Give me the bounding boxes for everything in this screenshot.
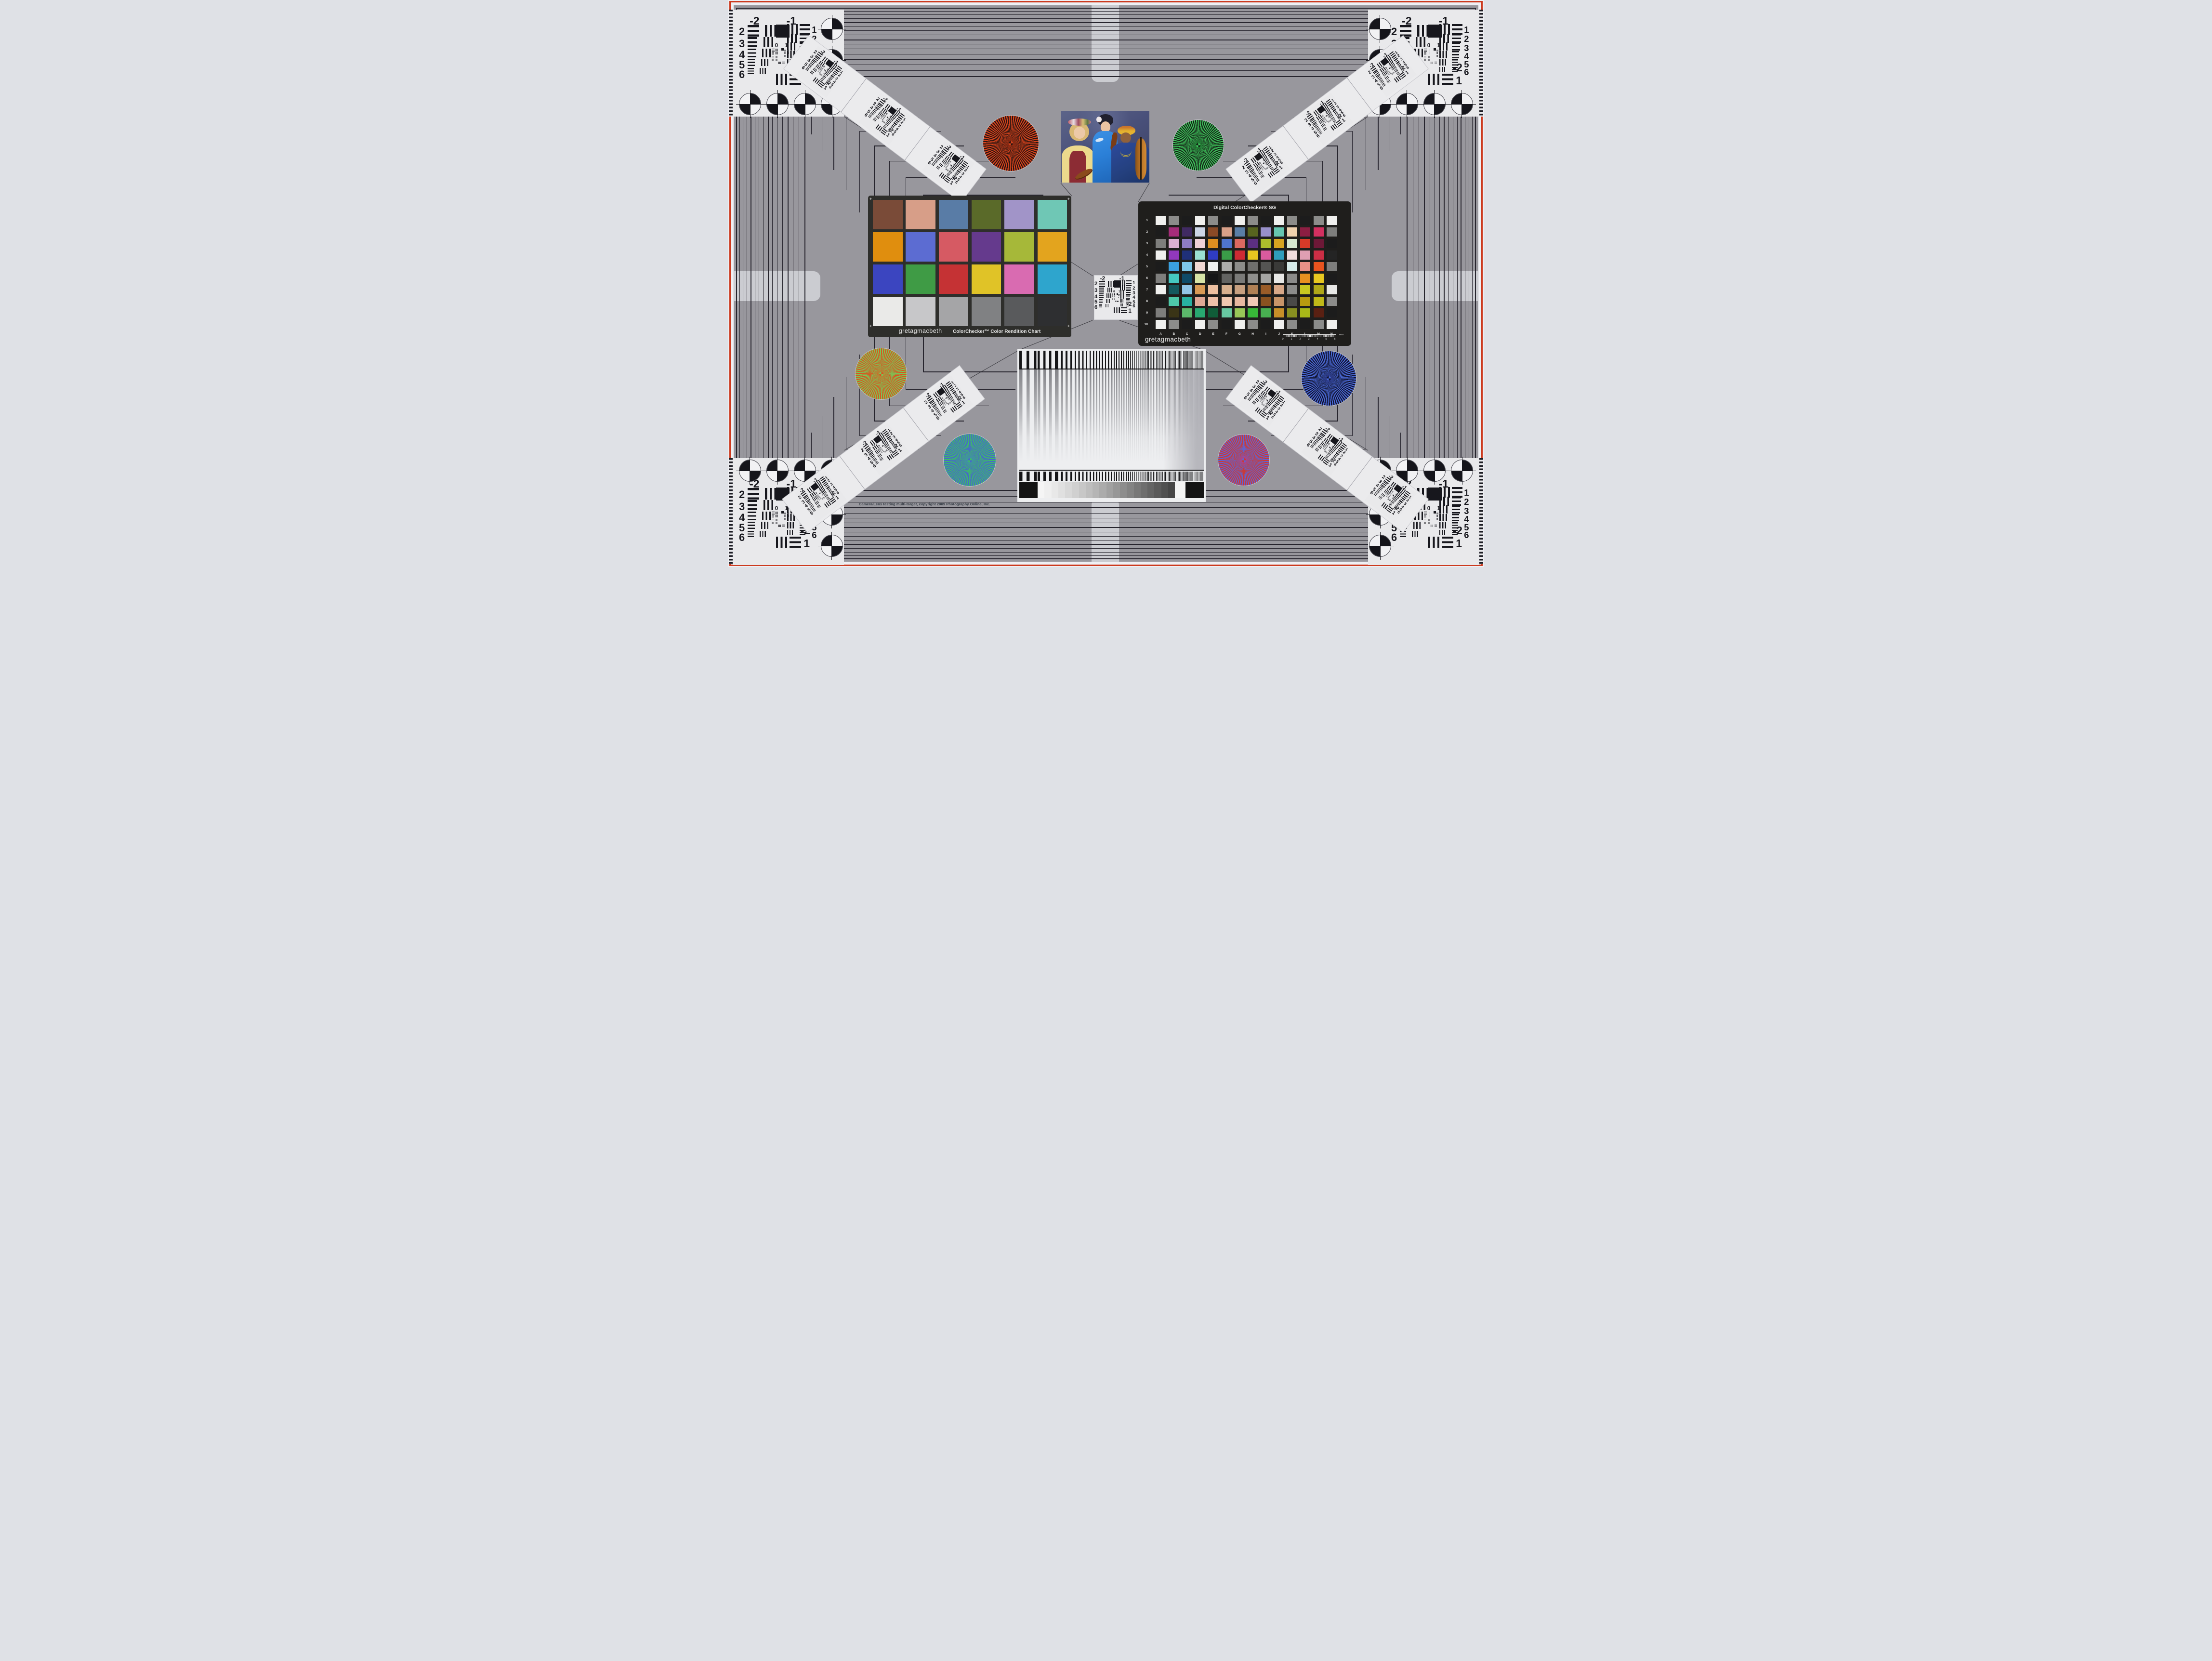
registration-circle-icon: [1451, 460, 1473, 481]
sg-patch: [1235, 297, 1245, 306]
resolution-bars: [1119, 297, 1120, 298]
resolution-bars: [1099, 293, 1103, 298]
resolution-bars: [1112, 295, 1113, 297]
resolution-bars: [1436, 52, 1438, 54]
resolution-bars: [1417, 25, 1429, 37]
sg-patch: [1169, 320, 1179, 329]
crosshair-line: [1421, 104, 1448, 105]
resolution-bars: [1114, 295, 1115, 297]
usaf-label: 3: [739, 501, 745, 512]
sg-patch: [1314, 285, 1324, 294]
bar-frequency-segment: [1093, 351, 1111, 369]
sg-patch: [1235, 227, 1245, 237]
sg-column-label: K: [1287, 332, 1297, 336]
usaf-label: 1: [1437, 506, 1440, 512]
resolution-bars: [1119, 294, 1120, 295]
resolution-bars: [1439, 59, 1446, 66]
resolution-bars: [1435, 62, 1437, 64]
wedge-black-cap: [1019, 482, 1038, 498]
sg-patch: [1274, 216, 1284, 225]
usaf-label: 2: [1464, 35, 1469, 43]
usaf-label: 1: [1456, 75, 1462, 86]
sg-patch: [1169, 262, 1179, 271]
resolution-bars: [1264, 168, 1265, 170]
resolution-bars: [762, 49, 771, 57]
bar-frequency-segment: [1185, 351, 1204, 369]
colorchecker-brand: gretagmacbeth: [899, 328, 942, 334]
usaf-label: 2: [739, 26, 745, 37]
sg-patch: [1261, 262, 1271, 271]
resolution-bars: [885, 447, 886, 448]
resolution-bars: [1310, 445, 1314, 448]
registration-circle-icon: [821, 535, 843, 556]
sg-row-label: 7: [1141, 288, 1148, 291]
resolution-bars: [1452, 514, 1459, 521]
sg-patch: [1222, 308, 1232, 317]
usaf-label: 6: [739, 532, 745, 543]
resolution-bars: [1328, 121, 1330, 122]
ruler-number: 2: [1298, 338, 1302, 341]
resolution-bars: [760, 531, 766, 537]
colorchecker-patch: [972, 264, 1001, 294]
colorchecker-title: ColorChecker™ Color Rendition Chart: [953, 329, 1040, 334]
resolution-bars: [1114, 293, 1115, 295]
sg-patch: [1235, 239, 1245, 248]
resolution-bars: [778, 525, 781, 527]
registration-circle-icon: [767, 460, 788, 481]
sg-patch: [1182, 227, 1192, 237]
registration-circle-icon: [821, 18, 843, 40]
registration-circle-icon: [767, 93, 788, 115]
resolution-bars: [1248, 397, 1251, 401]
colorchecker-patch: [1004, 264, 1034, 294]
resolution-bars: [1099, 304, 1102, 307]
resolution-bars: [822, 498, 823, 500]
ruler-number: 0: [1281, 338, 1285, 341]
resolution-bars: [1120, 299, 1123, 303]
resolution-bars: [1424, 512, 1427, 514]
usaf-label: 3: [1094, 288, 1097, 293]
sg-patch: [1314, 227, 1324, 237]
bar-frequency-segment: [1075, 351, 1093, 369]
resolution-bars: [1260, 174, 1264, 178]
ruler-number: 5: [1324, 338, 1328, 341]
sg-patch: [1182, 250, 1192, 260]
sg-patch: [1261, 250, 1271, 260]
sg-patch: [1261, 216, 1271, 225]
usaf-label: 2: [739, 489, 745, 500]
colorchecker-classic-chart: + + + + gretagmacbeth ColorChecker™ Colo…: [868, 196, 1071, 337]
registration-circle-icon: [1396, 93, 1418, 115]
resolution-bars: [1428, 515, 1430, 517]
resolution-bars: [1329, 117, 1330, 118]
sg-patch: [1261, 285, 1271, 294]
resolution-bars: [1118, 294, 1119, 295]
resolution-bars: [880, 457, 883, 461]
resolution-bars: [1428, 522, 1430, 524]
resolution-bars: [823, 497, 825, 499]
resolution-bars: [1325, 122, 1327, 123]
sg-patch: [1327, 308, 1337, 317]
sg-patch: [1314, 308, 1324, 317]
sg-patch: [1287, 285, 1297, 294]
sg-patch: [1287, 262, 1297, 271]
sg-patch: [1182, 285, 1192, 294]
resolution-bars: [784, 518, 786, 520]
crosshair-line: [832, 15, 832, 43]
digital-colorchecker-sg-chart: Digital ColorChecker® SG gretagmacbeth 0…: [1138, 201, 1351, 346]
resolution-bars: [784, 515, 786, 517]
resolution-bars: [949, 402, 951, 403]
resolution-bars: [1118, 295, 1119, 296]
sg-patch: [1314, 274, 1324, 283]
resolution-bars: [1378, 496, 1382, 500]
sg-patch: [1169, 227, 1179, 237]
sg-patch: [1248, 320, 1258, 329]
wedge-step: [1086, 482, 1093, 498]
resolution-bars: [748, 59, 755, 66]
wedge-step: [1154, 482, 1161, 498]
registration-circle-icon: [1369, 535, 1391, 556]
crosshair-line: [1380, 532, 1381, 560]
resolution-bars: [1330, 119, 1331, 121]
sg-patch: [1261, 227, 1271, 237]
colorchecker-patch: [873, 264, 903, 294]
sg-column-label: H: [1248, 332, 1258, 336]
usaf-label: 6: [927, 160, 932, 166]
sg-patch: [1274, 285, 1284, 294]
resolution-bars: [1431, 525, 1433, 527]
sg-patch: [1169, 216, 1179, 225]
crosshair-line: [1366, 29, 1394, 29]
resolution-bars: [1436, 518, 1438, 520]
sg-column-label: G: [1235, 332, 1245, 336]
photo-three-musicians: [1061, 111, 1149, 183]
registration-circle-icon: [1451, 93, 1473, 115]
colorchecker-patch: [906, 297, 935, 326]
sg-patch: [1327, 320, 1337, 329]
sweep-blur-overlay: [1019, 369, 1204, 470]
sg-patch: [1274, 308, 1284, 317]
sg-patch: [1222, 250, 1232, 260]
usaf-label: 1: [803, 538, 810, 549]
sg-patch: [1182, 262, 1192, 271]
sg-patch: [1182, 297, 1192, 306]
sg-patch: [1169, 285, 1179, 294]
sg-patch: [1300, 216, 1310, 225]
usaf-label: 1: [1456, 538, 1462, 549]
usaf-label: 1: [1132, 281, 1135, 286]
sg-patch: [1235, 308, 1245, 317]
sg-row-label: 10: [1141, 323, 1148, 326]
resolution-bars: [875, 461, 879, 464]
sg-patch: [1222, 262, 1232, 271]
sg-patch: [1300, 320, 1310, 329]
resolution-bars: [882, 452, 883, 453]
colorchecker-patch: [1004, 232, 1034, 262]
colorchecker-patch: [1038, 232, 1067, 262]
sg-row-label: 4: [1141, 253, 1148, 257]
resolution-bars: [764, 37, 773, 47]
sg-patch: [1300, 262, 1310, 271]
resolution-bars: [1424, 49, 1427, 52]
sg-patch: [1314, 250, 1324, 260]
resolution-bars: [762, 512, 771, 520]
sg-patch: [1274, 262, 1284, 271]
usaf-label: -2: [1453, 62, 1462, 73]
resolution-bars: [1424, 52, 1426, 54]
bar-frequency-segment: [1093, 472, 1111, 481]
star-center-dot: [1196, 143, 1200, 147]
star-green-black: [1173, 120, 1224, 171]
resolution-bars: [776, 56, 778, 58]
resolution-bars: [1121, 307, 1127, 314]
registration-circle-icon: [1424, 460, 1445, 481]
resolution-bars: [765, 25, 777, 37]
resolution-bars: [748, 68, 754, 74]
sg-patch: [1261, 308, 1271, 317]
resolution-bars: [948, 403, 949, 404]
sg-patch: [1274, 274, 1284, 283]
sg-patch: [1169, 250, 1179, 260]
colorchecker-patch: [906, 264, 935, 294]
star-blue-black: [1302, 351, 1356, 406]
resolution-bars: [1326, 121, 1328, 122]
wedge-step: [1120, 482, 1127, 498]
sg-patch: [1248, 262, 1258, 271]
resolution-bars: [883, 122, 885, 123]
wedge-step: [1106, 482, 1113, 498]
resolution-bars: [1323, 127, 1327, 131]
sg-patch: [1287, 216, 1297, 225]
resolution-bars: [938, 413, 942, 417]
resolution-bars: [772, 522, 774, 524]
resolution-bars: [1452, 34, 1461, 43]
sg-patch: [1248, 216, 1258, 225]
ruler-number: 4: [1316, 338, 1319, 341]
usaf-label: 0: [1427, 43, 1430, 49]
sg-patch: [1235, 262, 1245, 271]
sg-patch: [1156, 308, 1166, 317]
resolution-bars: [784, 52, 786, 54]
sg-patch: [1287, 250, 1297, 260]
wedge-step: [1147, 482, 1154, 498]
crosshair-line: [1393, 104, 1421, 105]
sg-patch: [1287, 274, 1297, 283]
usaf-inner-square: [1434, 511, 1436, 514]
sg-column-label: C: [1182, 332, 1192, 336]
resolution-bars: [782, 525, 785, 527]
sg-patch: [1287, 320, 1297, 329]
sg-patch: [1195, 216, 1205, 225]
registration-circle-icon: [794, 93, 816, 115]
colorchecker-caption: gretagmacbeth ColorChecker™ Color Rendit…: [868, 327, 1071, 335]
wedge-step: [1134, 482, 1141, 498]
sg-patch: [1222, 227, 1232, 237]
sg-patch: [1327, 285, 1337, 294]
resolution-bars: [1107, 288, 1113, 293]
sg-brand: gretagmacbeth: [1145, 336, 1191, 343]
resolution-bars: [882, 451, 884, 452]
resolution-bars: [1439, 497, 1449, 506]
sg-patch: [1222, 297, 1232, 306]
resolution-bars: [764, 500, 773, 510]
frequency-sweep-panel: [1017, 349, 1206, 502]
wedge-step: [1072, 482, 1079, 498]
sg-patch: [1222, 320, 1232, 329]
colorchecker-patch: [939, 264, 969, 294]
resolution-bars: [776, 52, 778, 54]
bar-frequency-segment: [1038, 351, 1056, 369]
wedge-step: [1168, 482, 1175, 498]
resolution-bars: [782, 62, 785, 64]
wedge-step: [1099, 482, 1106, 498]
sg-patch: [1274, 239, 1284, 248]
resolution-bars: [1436, 515, 1438, 517]
sg-patch: [1287, 239, 1297, 248]
crosshair-line: [818, 546, 846, 546]
sg-patch: [1261, 320, 1271, 329]
resolution-bars: [1439, 55, 1441, 57]
sg-patch: [1169, 274, 1179, 283]
colorchecker-patch: [972, 200, 1001, 229]
sg-patch: [1156, 320, 1166, 329]
sg-row-label: 6: [1141, 277, 1148, 280]
resolution-bars: [1386, 79, 1390, 83]
crosshair-line: [805, 90, 805, 118]
resolution-bars: [820, 498, 821, 500]
star-red-black: [983, 116, 1039, 171]
usaf-label: 6: [1464, 531, 1469, 540]
star-center-dot: [1327, 376, 1331, 381]
resolution-bars: [1326, 452, 1327, 453]
usaf-label: 6: [1305, 443, 1310, 448]
usaf-label: 2: [1094, 281, 1097, 287]
wedge-black-cap: [1185, 482, 1204, 498]
colorchecker-patch: [906, 200, 935, 229]
usaf-label: 1: [785, 43, 788, 49]
resolution-bars: [787, 34, 797, 43]
resolution-bars: [1318, 131, 1322, 134]
musician-left-face: [1074, 127, 1085, 139]
resolution-bars: [948, 399, 949, 400]
sg-patch: [1287, 297, 1297, 306]
resolution-bars: [772, 49, 775, 52]
sg-column-label: J: [1274, 332, 1284, 336]
usaf-inner-square: [781, 48, 784, 51]
resolution-bars: [784, 50, 786, 52]
colorchecker-patch: [1004, 297, 1034, 326]
resolution-bars: [1392, 69, 1393, 70]
sg-patch: [1182, 216, 1192, 225]
resolution-bars: [1112, 293, 1113, 295]
colorchecker-patch: [972, 232, 1001, 262]
sg-title: Digital ColorChecker® SG: [1138, 205, 1351, 211]
resolution-bars: [1265, 168, 1267, 170]
resolution-bars: [1256, 178, 1260, 182]
resolution-bars: [772, 519, 774, 521]
resolution-bars: [1439, 530, 1445, 536]
resolution-bars: [1400, 25, 1411, 37]
resolution-bars: [1452, 51, 1459, 58]
sg-patch: [1287, 308, 1297, 317]
resolution-bars: [1114, 298, 1115, 299]
sg-patch: [1156, 262, 1166, 271]
colorchecker-patch: [939, 200, 969, 229]
resolution-bars: [760, 68, 766, 74]
usaf-label: 6: [863, 113, 868, 118]
usaf-inner-square: [1434, 48, 1436, 51]
crosshair-line: [791, 471, 819, 471]
bar-frequency-segment: [1056, 351, 1075, 369]
resolution-bars: [1439, 52, 1441, 54]
resolution-bars: [821, 74, 822, 76]
sg-patch: [1314, 262, 1324, 271]
sg-patch: [1274, 227, 1284, 237]
usaf-label: -2: [1453, 525, 1462, 536]
usaf-label: 6: [1243, 395, 1248, 400]
bar-frequency-segment: [1111, 351, 1130, 369]
resolution-bars: [1112, 298, 1113, 299]
bar-frequency-segment: [1130, 472, 1148, 481]
colorchecker-patch: [939, 297, 969, 326]
usaf-label: 2: [1391, 26, 1397, 37]
star-green-blue: [944, 434, 996, 486]
resolution-bars: [1393, 72, 1395, 73]
usaf-label: 2: [1464, 498, 1469, 506]
resolution-bars: [1117, 301, 1119, 302]
resolution-bars: [884, 451, 886, 452]
resolution-bars: [776, 515, 778, 517]
resolution-bars: [784, 55, 786, 57]
sg-patch: [1208, 239, 1218, 248]
bar-frequency-segment: [1056, 472, 1075, 481]
resolution-bars: [748, 500, 757, 510]
wedge-step: [1127, 482, 1133, 498]
sg-patch: [1248, 250, 1258, 260]
resolution-bars: [1428, 512, 1431, 514]
sg-patch: [1208, 262, 1218, 271]
resolution-bars: [1412, 531, 1418, 537]
sg-column-label: N: [1327, 332, 1337, 336]
resolution-bars: [1428, 59, 1430, 61]
crosshair-line: [1462, 457, 1462, 485]
sg-patch: [1248, 285, 1258, 294]
sg-patch: [1235, 285, 1245, 294]
resolution-bars: [1114, 307, 1119, 314]
resolution-bars: [1388, 74, 1390, 76]
usaf-label: 0: [775, 43, 778, 49]
sg-patch: [1195, 250, 1205, 260]
sg-patch: [1222, 239, 1232, 248]
resolution-bars: [1439, 34, 1449, 43]
sg-patch: [1169, 297, 1179, 306]
sg-patch: [1261, 274, 1271, 283]
resolution-bars: [787, 522, 794, 528]
usaf-label: 6: [739, 69, 745, 80]
crosshair-line: [1435, 457, 1435, 485]
resolution-bars: [1436, 50, 1438, 52]
resolution-bars: [1439, 522, 1446, 528]
usaf-label: 6: [1132, 304, 1135, 309]
sg-patch: [1195, 239, 1205, 248]
colorchecker-patch: [939, 232, 969, 262]
sg-patch: [1327, 216, 1337, 225]
resolution-bars: [1439, 518, 1441, 520]
registration-circle-icon: [739, 460, 761, 481]
resolution-bars: [1267, 167, 1268, 169]
resolution-bars: [810, 70, 814, 74]
